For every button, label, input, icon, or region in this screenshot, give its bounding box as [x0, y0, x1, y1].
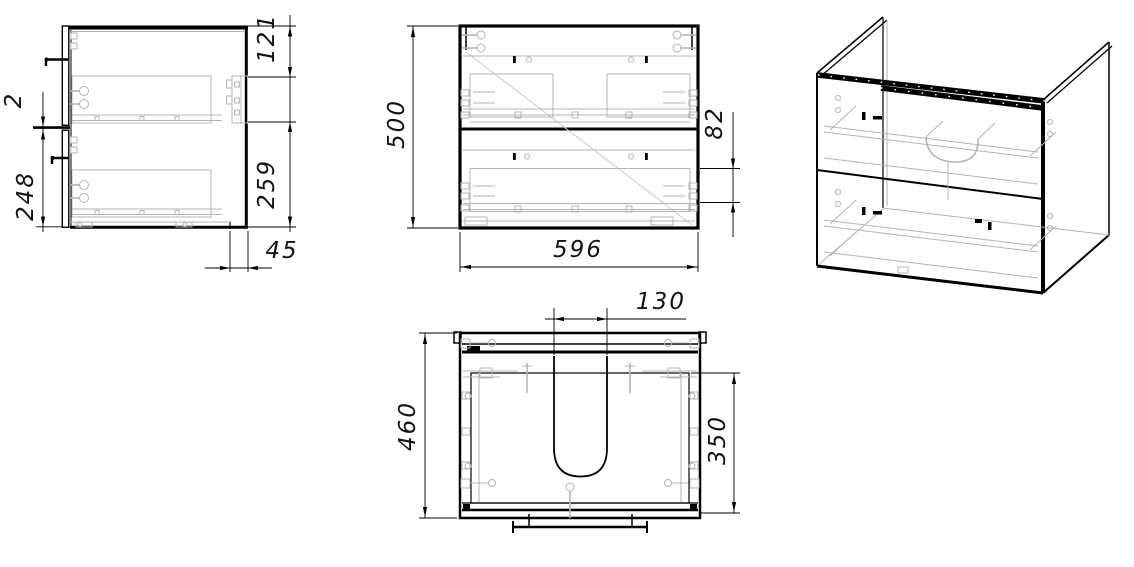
side-view-cabinet-outline [62, 26, 248, 229]
dimension-lower-front-248: 248 [13, 171, 62, 227]
upper-drawer-front-edge [62, 26, 69, 125]
iso-bottom-front-edge [817, 266, 1043, 293]
dimension-drawer-box-82: 82 [700, 106, 740, 237]
plan-view: 460 350 130 [395, 289, 740, 533]
dim-label-bottom-back-offset: 45 [265, 238, 298, 264]
iso-right-side-panel [1043, 42, 1112, 293]
iso-left-side-panel [817, 17, 887, 266]
iso-lower-drawer [824, 190, 1056, 279]
plan-cabinet-outline [460, 333, 700, 518]
dim-label-cutout-depth: 350 [705, 415, 731, 465]
dim-label-top-to-bracket: 121 [254, 13, 280, 63]
upper-drawer-slides [70, 33, 222, 123]
front-view: 500 596 82 [384, 26, 740, 272]
dim-label-drawer-box-height: 82 [702, 106, 728, 139]
technical-drawing-canvas: 2 248 121 259 [0, 0, 1134, 567]
isometric-view [817, 17, 1112, 293]
dim-label-cutout-width: 130 [636, 289, 686, 315]
iso-plumbing-cutout [926, 121, 995, 162]
dimension-bottom-back-offset-45: 45 [205, 231, 299, 272]
dim-label-bracket-to-bottom: 259 [254, 159, 280, 209]
dimension-width-596: 596 [460, 232, 698, 272]
dim-label-lower-front-height: 248 [13, 171, 39, 221]
dim-label-depth: 460 [395, 401, 421, 451]
dim-label-front-gap: 2 [1, 92, 27, 109]
lower-drawer-slides [70, 137, 222, 217]
iso-drawer-divider [817, 170, 1043, 199]
iso-top-rails-edge-banding [818, 75, 1045, 108]
dimension-bracket-to-bottom-259: 259 [254, 122, 292, 227]
dim-label-height: 500 [384, 99, 410, 149]
dimension-height-500: 500 [384, 26, 458, 228]
iso-fitting-marks [862, 112, 992, 230]
technical-drawing-page: 2 248 121 259 [0, 0, 1134, 567]
lower-drawer-front-edge [62, 130, 69, 227]
side-view: 2 248 121 259 [1, 13, 299, 272]
iso-upper-drawer [824, 96, 1056, 201]
dim-label-width: 596 [553, 237, 603, 263]
dimension-depth-460: 460 [395, 333, 457, 518]
wall-mounting-bracket [227, 76, 248, 123]
